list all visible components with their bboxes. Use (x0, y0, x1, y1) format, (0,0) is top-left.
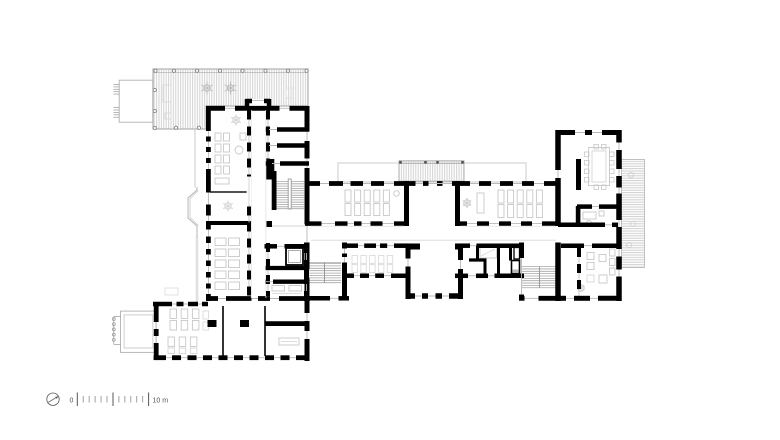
svg-text:0: 0 (70, 398, 74, 405)
svg-text:10 m: 10 m (153, 398, 169, 405)
